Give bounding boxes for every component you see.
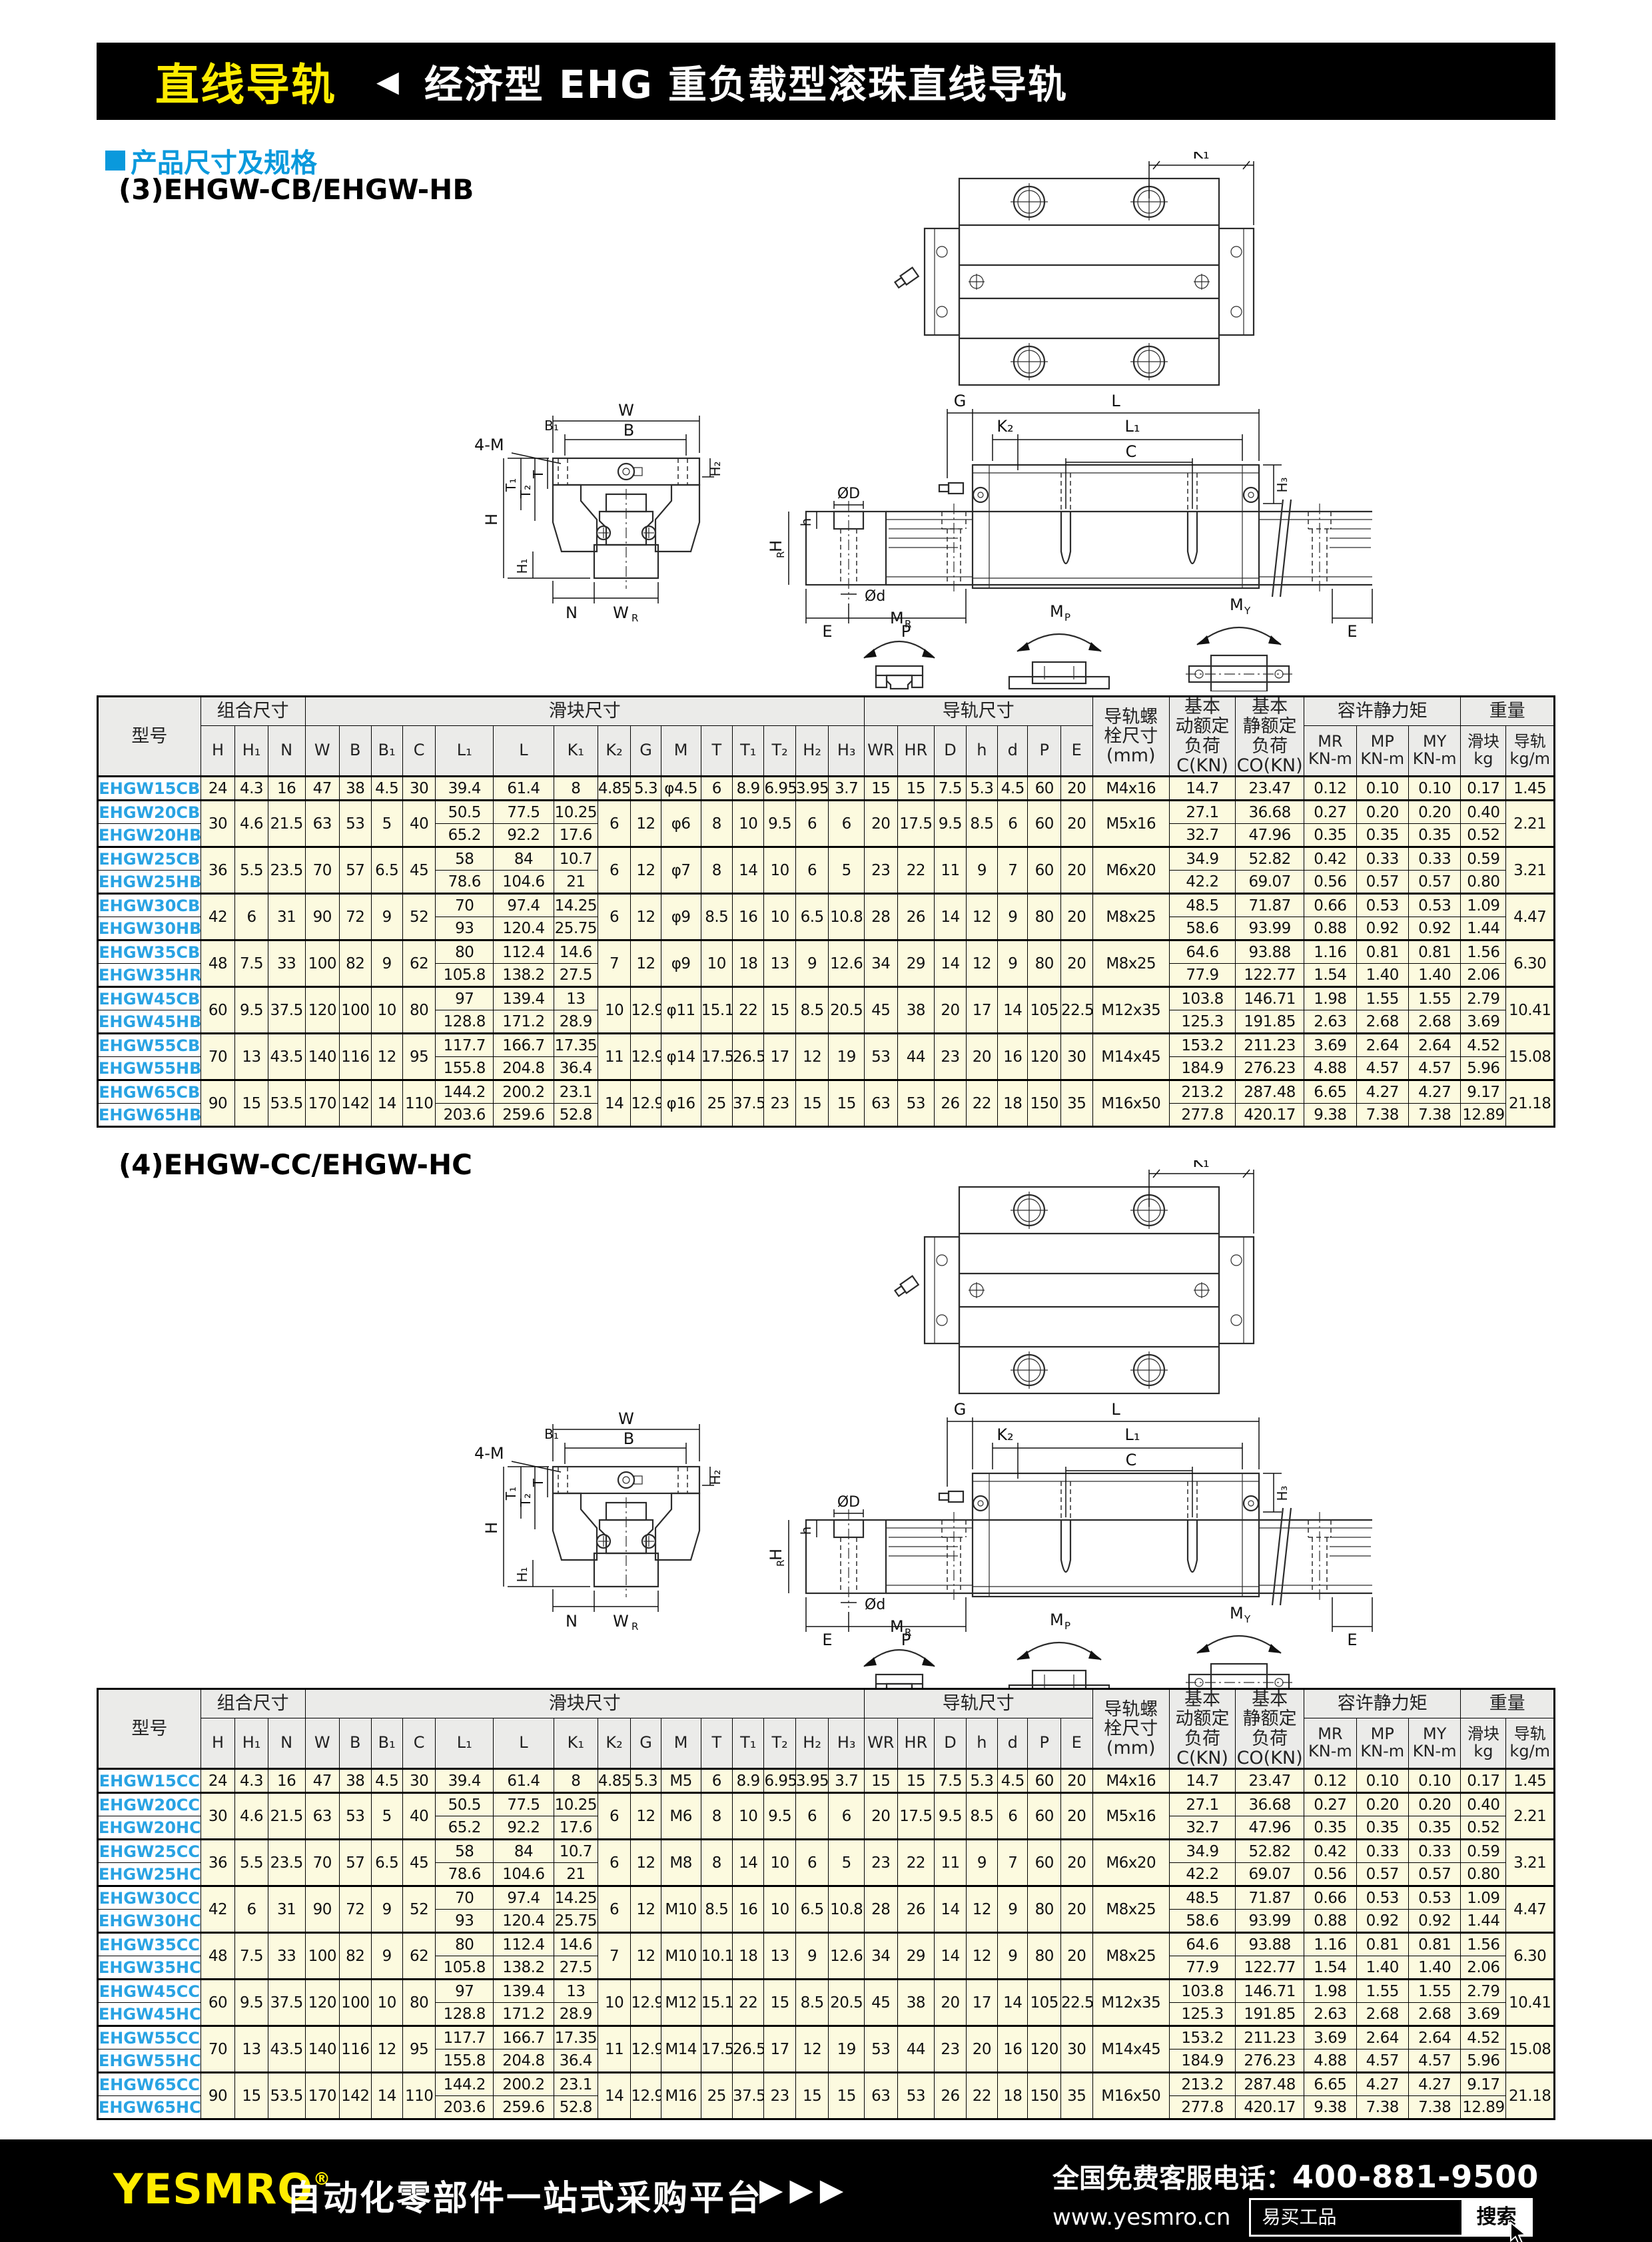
value-cell: 16 bbox=[733, 894, 764, 940]
value-cell: 100 bbox=[305, 940, 340, 987]
value-cell: 287.48 bbox=[1236, 1080, 1304, 1104]
value-cell: 6 bbox=[598, 1840, 631, 1886]
column-header-model: 型号 bbox=[98, 697, 201, 777]
value-cell: 12.9 bbox=[631, 2026, 661, 2073]
value-cell: 12 bbox=[631, 1793, 661, 1840]
value-cell: 8.9 bbox=[733, 1769, 764, 1793]
value-cell: 13 bbox=[764, 940, 795, 987]
value-cell: 12 bbox=[631, 940, 661, 987]
svg-text:W: W bbox=[613, 1612, 629, 1631]
value-cell: 33 bbox=[268, 1933, 305, 1980]
value-cell: 14.25 bbox=[554, 894, 598, 917]
hotline-number: 400-881-9500 bbox=[1292, 2159, 1539, 2195]
value-cell: 43.5 bbox=[268, 2026, 305, 2073]
moment-my-diagram: M Y bbox=[1186, 1604, 1292, 1700]
value-cell: 2.06 bbox=[1461, 964, 1506, 987]
value-cell: 18 bbox=[733, 1933, 764, 1980]
model-cell: EHGW35HR bbox=[98, 964, 201, 987]
value-cell: 17.6 bbox=[554, 824, 598, 847]
value-cell: 103.8 bbox=[1170, 1980, 1236, 2003]
svg-text:B₁: B₁ bbox=[544, 418, 559, 434]
svg-text:H₂: H₂ bbox=[707, 461, 723, 476]
value-cell: 14 bbox=[371, 2073, 402, 2119]
value-cell: 22 bbox=[733, 1980, 764, 2026]
value-cell: 6.30 bbox=[1506, 1933, 1555, 1980]
value-cell: 70 bbox=[201, 2026, 235, 2073]
value-cell: 4.57 bbox=[1356, 1057, 1408, 1080]
value-cell: M5 bbox=[661, 1769, 701, 1793]
value-cell: 17.35 bbox=[554, 1034, 598, 1057]
value-cell: 12 bbox=[795, 1034, 829, 1080]
page-footer: YESMRO® 自动化零部件一站式采购平台 ▶▶▶ 全国免费客服电话：400-8… bbox=[0, 2139, 1652, 2242]
value-cell: M4x16 bbox=[1092, 1769, 1170, 1793]
column-header: C bbox=[402, 726, 436, 777]
value-cell: 1.09 bbox=[1461, 1886, 1506, 1910]
value-cell: 12 bbox=[631, 1886, 661, 1933]
value-cell: 7.5 bbox=[235, 1933, 268, 1980]
value-cell: 14.25 bbox=[554, 1886, 598, 1910]
value-cell: 1.44 bbox=[1461, 917, 1506, 940]
column-header: B₁ bbox=[371, 726, 402, 777]
value-cell: 122.77 bbox=[1236, 964, 1304, 987]
column-header-bolt: 导轨螺 栓尺寸 (mm) bbox=[1092, 697, 1170, 777]
value-cell: M5x16 bbox=[1092, 801, 1170, 847]
value-cell: 0.53 bbox=[1356, 1886, 1408, 1910]
value-cell: 12 bbox=[631, 1933, 661, 1980]
value-cell: 16 bbox=[733, 1886, 764, 1933]
value-cell: 4.3 bbox=[235, 777, 268, 801]
value-cell: 120 bbox=[305, 987, 340, 1034]
value-cell: 14 bbox=[998, 987, 1028, 1034]
svg-text:H₁: H₁ bbox=[514, 1567, 530, 1582]
value-cell: 0.52 bbox=[1461, 1816, 1506, 1840]
value-cell: 0.20 bbox=[1408, 801, 1460, 824]
column-header-static-load: 基本 静额定 负荷 CO(KN) bbox=[1236, 697, 1304, 777]
value-cell: 8 bbox=[701, 1793, 732, 1840]
value-cell: 80 bbox=[1028, 1886, 1061, 1933]
value-cell: 10 bbox=[764, 1840, 795, 1886]
value-cell: 200.2 bbox=[494, 1080, 554, 1104]
value-cell: 0.57 bbox=[1356, 1863, 1408, 1886]
value-cell: 23 bbox=[865, 1840, 898, 1886]
triple-arrow-icon: ▶▶▶ bbox=[759, 2171, 850, 2207]
value-cell: 20 bbox=[865, 1793, 898, 1840]
value-cell: M10 bbox=[661, 1933, 701, 1980]
svg-text:G: G bbox=[954, 1400, 967, 1419]
value-cell: 10 bbox=[598, 1980, 631, 2026]
value-cell: 26 bbox=[897, 894, 935, 940]
linear-guide-drawing: K₁ W B B₁ 4-M bbox=[373, 152, 1399, 691]
value-cell: 90 bbox=[305, 1886, 340, 1933]
rail-bolt-section: ØD h H R Ød E P bbox=[767, 1494, 966, 1649]
model-cell: EHGW15CC bbox=[98, 1769, 201, 1793]
column-header: M bbox=[661, 726, 701, 777]
value-cell: 21 bbox=[554, 1863, 598, 1886]
svg-text:M: M bbox=[1230, 595, 1244, 614]
value-cell: 20 bbox=[1060, 894, 1092, 940]
value-cell: 0.80 bbox=[1461, 871, 1506, 894]
value-cell: 21.5 bbox=[268, 1793, 305, 1840]
value-cell: 16 bbox=[268, 777, 305, 801]
svg-text:M: M bbox=[1050, 1611, 1064, 1629]
value-cell: 10 bbox=[764, 894, 795, 940]
value-cell: 4.57 bbox=[1408, 2050, 1460, 2073]
page-header-banner: 直线导轨 ◀ 经济型 EHG 重负载型滚珠直线导轨 bbox=[97, 43, 1555, 120]
svg-text:W: W bbox=[618, 1409, 634, 1428]
svg-text:M: M bbox=[1050, 602, 1064, 621]
value-cell: 82 bbox=[340, 940, 371, 987]
value-cell: 5 bbox=[371, 801, 402, 847]
value-cell: 7 bbox=[998, 847, 1028, 894]
value-cell: 26.5 bbox=[733, 1034, 764, 1080]
value-cell: 1.40 bbox=[1408, 964, 1460, 987]
value-cell: 4.5 bbox=[998, 777, 1028, 801]
value-cell: 12 bbox=[371, 2026, 402, 2073]
value-cell: 116 bbox=[340, 1034, 371, 1080]
value-cell: 12.9 bbox=[631, 2073, 661, 2119]
value-cell: 138.2 bbox=[494, 964, 554, 987]
svg-text:E: E bbox=[1347, 622, 1357, 641]
value-cell: 125.3 bbox=[1170, 1010, 1236, 1034]
svg-text:C: C bbox=[1126, 442, 1137, 461]
value-cell: 1.98 bbox=[1304, 987, 1356, 1010]
value-cell: 23.47 bbox=[1236, 1769, 1304, 1793]
value-cell: 70 bbox=[436, 894, 494, 917]
value-cell: 9.5 bbox=[235, 1980, 268, 2026]
value-cell: 61.4 bbox=[494, 777, 554, 801]
value-cell: 0.20 bbox=[1356, 801, 1408, 824]
value-cell: 0.35 bbox=[1408, 824, 1460, 847]
value-cell: 0.10 bbox=[1408, 1769, 1460, 1793]
value-cell: 0.33 bbox=[1356, 847, 1408, 871]
svg-text:R: R bbox=[775, 1560, 787, 1567]
value-cell: 1.55 bbox=[1408, 987, 1460, 1010]
value-cell: 70 bbox=[201, 1034, 235, 1080]
value-cell: 28.9 bbox=[554, 2003, 598, 2026]
value-cell: 6.5 bbox=[795, 894, 829, 940]
value-cell: 4.57 bbox=[1356, 2050, 1408, 2073]
value-cell: 12.89 bbox=[1461, 1104, 1506, 1127]
value-cell: 53 bbox=[865, 2026, 898, 2073]
catalog-page: 直线导轨 ◀ 经济型 EHG 重负载型滚珠直线导轨 产品尺寸及规格 (3)EHG… bbox=[0, 0, 1652, 2242]
value-cell: 63 bbox=[865, 1080, 898, 1127]
rail-side bbox=[886, 500, 1372, 597]
value-cell: M8x25 bbox=[1092, 1933, 1170, 1980]
n-wr-dimensions: N W R bbox=[553, 1589, 658, 1633]
value-cell: 92.2 bbox=[494, 1816, 554, 1840]
value-cell: 28.9 bbox=[554, 1010, 598, 1034]
value-cell: 0.35 bbox=[1304, 824, 1356, 847]
value-cell: 0.59 bbox=[1461, 847, 1506, 871]
value-cell: 17 bbox=[966, 1980, 997, 2026]
model-cell: EHGW15CB bbox=[98, 777, 201, 801]
k1-dimension: K₁ bbox=[1149, 152, 1254, 225]
value-cell: 12.9 bbox=[631, 987, 661, 1034]
value-cell: 22 bbox=[966, 2073, 997, 2119]
value-cell: M6 bbox=[661, 1793, 701, 1840]
value-cell: 0.10 bbox=[1408, 777, 1460, 801]
value-cell: 7.38 bbox=[1408, 1104, 1460, 1127]
value-cell: 139.4 bbox=[494, 987, 554, 1010]
value-cell: 27.1 bbox=[1170, 1793, 1236, 1816]
value-cell: 37.5 bbox=[268, 987, 305, 1034]
svg-text:C: C bbox=[1126, 1451, 1137, 1469]
value-cell: 4.52 bbox=[1461, 2026, 1506, 2050]
value-cell: 203.6 bbox=[436, 1104, 494, 1127]
value-cell: 6 bbox=[829, 801, 865, 847]
value-cell: 23 bbox=[935, 2026, 966, 2073]
column-header: L₁ bbox=[436, 1718, 494, 1769]
svg-text:Y: Y bbox=[1244, 605, 1251, 617]
value-cell: 3.7 bbox=[829, 1769, 865, 1793]
value-cell: 105.8 bbox=[436, 964, 494, 987]
column-header: K₁ bbox=[554, 726, 598, 777]
column-header: G bbox=[631, 726, 661, 777]
value-cell: 0.27 bbox=[1304, 1793, 1356, 1816]
value-cell: 23 bbox=[935, 1034, 966, 1080]
value-cell: 0.88 bbox=[1304, 1910, 1356, 1933]
value-cell: 259.6 bbox=[494, 2096, 554, 2119]
value-cell: 7 bbox=[598, 1933, 631, 1980]
mouse-cursor-icon bbox=[1509, 2221, 1529, 2242]
value-cell: 1.09 bbox=[1461, 894, 1506, 917]
value-cell: 420.17 bbox=[1236, 1104, 1304, 1127]
model-cell: EHGW55CB bbox=[98, 1034, 201, 1057]
column-header: E bbox=[1060, 1718, 1092, 1769]
value-cell: 15 bbox=[764, 1980, 795, 2026]
value-cell: 53 bbox=[897, 1080, 935, 1127]
value-cell: 44 bbox=[897, 1034, 935, 1080]
value-cell: 211.23 bbox=[1236, 1034, 1304, 1057]
svg-text:Y: Y bbox=[1244, 1613, 1251, 1625]
value-cell: 42.2 bbox=[1170, 871, 1236, 894]
value-cell: 105 bbox=[1028, 1980, 1061, 2026]
svg-text:H: H bbox=[767, 1549, 785, 1561]
svg-text:P: P bbox=[1064, 611, 1070, 623]
value-cell: 5.3 bbox=[631, 1769, 661, 1793]
column-header: D bbox=[935, 1718, 966, 1769]
value-cell: 20 bbox=[1060, 1840, 1092, 1886]
value-cell: 48 bbox=[201, 1933, 235, 1980]
value-cell: 30 bbox=[402, 1769, 436, 1793]
value-cell: 277.8 bbox=[1170, 2096, 1236, 2119]
column-header: WR bbox=[865, 726, 898, 777]
value-cell: 1.44 bbox=[1461, 1910, 1506, 1933]
value-cell: 45 bbox=[402, 847, 436, 894]
value-cell: 9 bbox=[966, 847, 997, 894]
value-cell: M14x45 bbox=[1092, 1034, 1170, 1080]
mounting-holes bbox=[1011, 183, 1168, 380]
value-cell: 420.17 bbox=[1236, 2096, 1304, 2119]
value-cell: 14 bbox=[733, 1840, 764, 1886]
page-title: 经济型 EHG 重负载型滚珠直线导轨 bbox=[424, 53, 1068, 109]
n-wr-dimensions: N W R bbox=[553, 581, 658, 624]
value-cell: 9 bbox=[998, 894, 1028, 940]
value-cell: 8.5 bbox=[966, 1793, 997, 1840]
value-cell: 12 bbox=[966, 894, 997, 940]
value-cell: 166.7 bbox=[494, 1034, 554, 1057]
column-header: M bbox=[661, 1718, 701, 1769]
value-cell: 71.87 bbox=[1236, 1886, 1304, 1910]
value-cell: 0.20 bbox=[1408, 1793, 1460, 1816]
value-cell: 52 bbox=[402, 894, 436, 940]
value-cell: 7 bbox=[598, 940, 631, 987]
value-cell: 30 bbox=[402, 777, 436, 801]
value-cell: 13 bbox=[235, 2026, 268, 2073]
value-cell: 7 bbox=[998, 1840, 1028, 1886]
svg-text:4-M: 4-M bbox=[474, 436, 504, 454]
svg-text:K₂: K₂ bbox=[997, 1425, 1013, 1444]
value-cell: 0.40 bbox=[1461, 801, 1506, 824]
value-cell: 203.6 bbox=[436, 2096, 494, 2119]
column-header: K₂ bbox=[598, 726, 631, 777]
value-cell: 18 bbox=[998, 1080, 1028, 1127]
value-cell: 80 bbox=[402, 1980, 436, 2026]
value-cell: 6.5 bbox=[371, 1840, 402, 1886]
svg-text:M: M bbox=[890, 609, 904, 627]
value-cell: 78.6 bbox=[436, 871, 494, 894]
svg-text:G: G bbox=[954, 392, 967, 410]
value-cell: 61.4 bbox=[494, 1769, 554, 1793]
value-cell: 3.69 bbox=[1304, 2026, 1356, 2050]
value-cell: 23.47 bbox=[1236, 777, 1304, 801]
value-cell: 45 bbox=[865, 1980, 898, 2026]
value-cell: 10.1 bbox=[701, 1933, 732, 1980]
value-cell: 42 bbox=[201, 894, 235, 940]
value-cell: 1.16 bbox=[1304, 1933, 1356, 1956]
value-cell: 0.81 bbox=[1408, 940, 1460, 964]
value-cell: 9.5 bbox=[935, 1793, 966, 1840]
value-cell: 9 bbox=[998, 940, 1028, 987]
value-cell: 20 bbox=[1060, 847, 1092, 894]
value-cell: 0.92 bbox=[1356, 1910, 1408, 1933]
value-cell: 97.4 bbox=[494, 1886, 554, 1910]
svg-text:h: h bbox=[798, 518, 814, 527]
value-cell: 1.16 bbox=[1304, 940, 1356, 964]
value-cell: 15.08 bbox=[1506, 2026, 1555, 2073]
value-cell: 155.8 bbox=[436, 1057, 494, 1080]
value-cell: 9.17 bbox=[1461, 1080, 1506, 1104]
value-cell: 45 bbox=[865, 987, 898, 1034]
svg-text:E: E bbox=[822, 622, 832, 641]
value-cell: 15.08 bbox=[1506, 1034, 1555, 1080]
value-cell: 8 bbox=[701, 801, 732, 847]
value-cell: 142 bbox=[340, 1080, 371, 1127]
value-cell: 7.5 bbox=[235, 940, 268, 987]
value-cell: 97 bbox=[436, 1980, 494, 2003]
value-cell: 38 bbox=[340, 777, 371, 801]
value-cell: 12.89 bbox=[1461, 2096, 1506, 2119]
value-cell: 9.5 bbox=[764, 801, 795, 847]
carriage-side bbox=[939, 465, 1259, 588]
value-cell: 58 bbox=[436, 847, 494, 871]
mounting-holes bbox=[1011, 1192, 1168, 1389]
value-cell: 80 bbox=[1028, 1933, 1061, 1980]
value-cell: 5.3 bbox=[966, 777, 997, 801]
svg-text:R: R bbox=[631, 612, 638, 624]
value-cell: 37.5 bbox=[733, 1080, 764, 1127]
value-cell: 0.10 bbox=[1356, 1769, 1408, 1793]
column-group-header-moment: 容许静力矩 bbox=[1304, 697, 1461, 726]
value-cell: 3.69 bbox=[1461, 2003, 1506, 2026]
value-cell: 11 bbox=[598, 1034, 631, 1080]
svg-text:4-M: 4-M bbox=[474, 1444, 504, 1463]
value-cell: 100 bbox=[340, 987, 371, 1034]
value-cell: 25.75 bbox=[554, 917, 598, 940]
value-cell: 140 bbox=[305, 1034, 340, 1080]
value-cell: 15 bbox=[764, 987, 795, 1034]
value-cell: 4.47 bbox=[1506, 894, 1555, 940]
value-cell: 6 bbox=[598, 847, 631, 894]
value-cell: 125.3 bbox=[1170, 2003, 1236, 2026]
value-cell: 53 bbox=[340, 801, 371, 847]
svg-text:N: N bbox=[566, 1612, 578, 1631]
column-header: B bbox=[340, 1718, 371, 1769]
value-cell: 14 bbox=[371, 1080, 402, 1127]
value-cell: 104.6 bbox=[494, 1863, 554, 1886]
value-cell: 100 bbox=[340, 1980, 371, 2026]
value-cell: 2.63 bbox=[1304, 2003, 1356, 2026]
svg-text:B: B bbox=[623, 1429, 634, 1448]
value-cell: 23.1 bbox=[554, 1080, 598, 1104]
value-cell: 8.5 bbox=[795, 1980, 829, 2026]
value-cell: 9.5 bbox=[764, 1793, 795, 1840]
value-cell: 14.6 bbox=[554, 940, 598, 964]
value-cell: 65.2 bbox=[436, 824, 494, 847]
value-cell: 117.7 bbox=[436, 2026, 494, 2050]
value-cell: 84 bbox=[494, 847, 554, 871]
value-cell: 184.9 bbox=[1170, 1057, 1236, 1080]
model-cell: EHGW30CC bbox=[98, 1886, 201, 1910]
value-cell: 93 bbox=[436, 1910, 494, 1933]
value-cell: 29 bbox=[897, 1933, 935, 1980]
value-cell: 15 bbox=[865, 1769, 898, 1793]
value-cell: 153.2 bbox=[1170, 2026, 1236, 2050]
column-header: h bbox=[966, 1718, 997, 1769]
value-cell: 10.8 bbox=[829, 1886, 865, 1933]
value-cell: 5.3 bbox=[631, 777, 661, 801]
value-cell: 1.40 bbox=[1408, 1956, 1460, 1980]
column-header: T₂ bbox=[764, 1718, 795, 1769]
value-cell: 65.2 bbox=[436, 1816, 494, 1840]
value-cell: 95 bbox=[402, 1034, 436, 1080]
svg-text:W: W bbox=[618, 401, 634, 420]
column-header-model: 型号 bbox=[98, 1689, 201, 1769]
column-header-moment: MR KN-m bbox=[1304, 726, 1356, 777]
value-cell: M12x35 bbox=[1092, 987, 1170, 1034]
value-cell: 6.95 bbox=[764, 1769, 795, 1793]
value-cell: 0.92 bbox=[1408, 1910, 1460, 1933]
value-cell: 17.35 bbox=[554, 2026, 598, 2050]
value-cell: φ6 bbox=[661, 801, 701, 847]
column-group-header: 导轨尺寸 bbox=[865, 697, 1092, 726]
value-cell: 8 bbox=[701, 1840, 732, 1886]
value-cell: 144.2 bbox=[436, 2073, 494, 2096]
value-cell: 0.66 bbox=[1304, 894, 1356, 917]
value-cell: φ9 bbox=[661, 940, 701, 987]
value-cell: 14.6 bbox=[554, 1933, 598, 1956]
value-cell: 17 bbox=[764, 1034, 795, 1080]
value-cell: 77.5 bbox=[494, 1793, 554, 1816]
value-cell: 58 bbox=[436, 1840, 494, 1863]
value-cell: 150 bbox=[1028, 2073, 1061, 2119]
value-cell: 10.7 bbox=[554, 1840, 598, 1863]
value-cell: 22 bbox=[966, 1080, 997, 1127]
value-cell: 3.21 bbox=[1506, 847, 1555, 894]
value-cell: 4.6 bbox=[235, 801, 268, 847]
value-cell: 25 bbox=[701, 1080, 732, 1127]
value-cell: 22.5 bbox=[1060, 1980, 1092, 2026]
